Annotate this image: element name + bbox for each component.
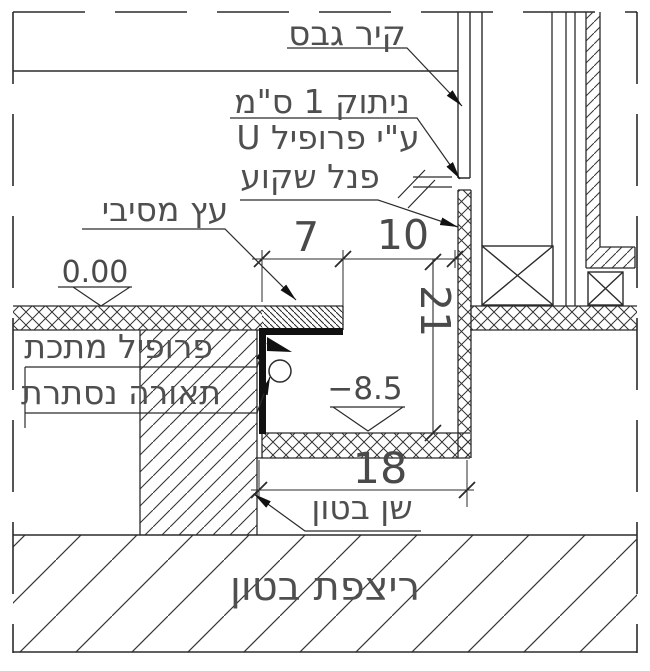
label-solid-wood: עץ מסיבי bbox=[85, 193, 245, 227]
label-hidden-lighting: תאורה נסתרת bbox=[27, 376, 221, 410]
elevation-recess-value: −8.5 bbox=[320, 374, 410, 406]
dimension-10: 10 bbox=[376, 215, 430, 257]
label-separation: ניתוק 1 ס"מ bbox=[232, 85, 412, 119]
label-concrete-floor: ריצפת בטון bbox=[215, 567, 435, 608]
floor-screed-right bbox=[470, 306, 637, 330]
blocking-box-small bbox=[588, 272, 623, 305]
label-concrete-tooth: שן בטון bbox=[300, 491, 424, 525]
label-gypsum-wall: קיר גבס bbox=[277, 17, 417, 52]
dimension-7: 7 bbox=[288, 217, 324, 259]
dimension-18: 18 bbox=[338, 448, 422, 492]
label-by-u-profile: ע"י פרופיל U bbox=[218, 121, 438, 155]
solid-wood-block bbox=[262, 306, 343, 330]
label-metal-profile: פרופיל מתכת bbox=[27, 330, 213, 364]
elevation-floor-value: 0.00 bbox=[56, 258, 134, 289]
dimension-21: 21 bbox=[413, 285, 455, 333]
label-recessed-panel: פנל שקוע bbox=[240, 160, 380, 194]
blocking-box-large bbox=[482, 246, 553, 305]
section-detail-drawing: קיר גבס ניתוק 1 ס"מ ע"י פרופיל U פנל שקו… bbox=[0, 0, 650, 671]
recessed-panel-strip bbox=[458, 190, 471, 458]
